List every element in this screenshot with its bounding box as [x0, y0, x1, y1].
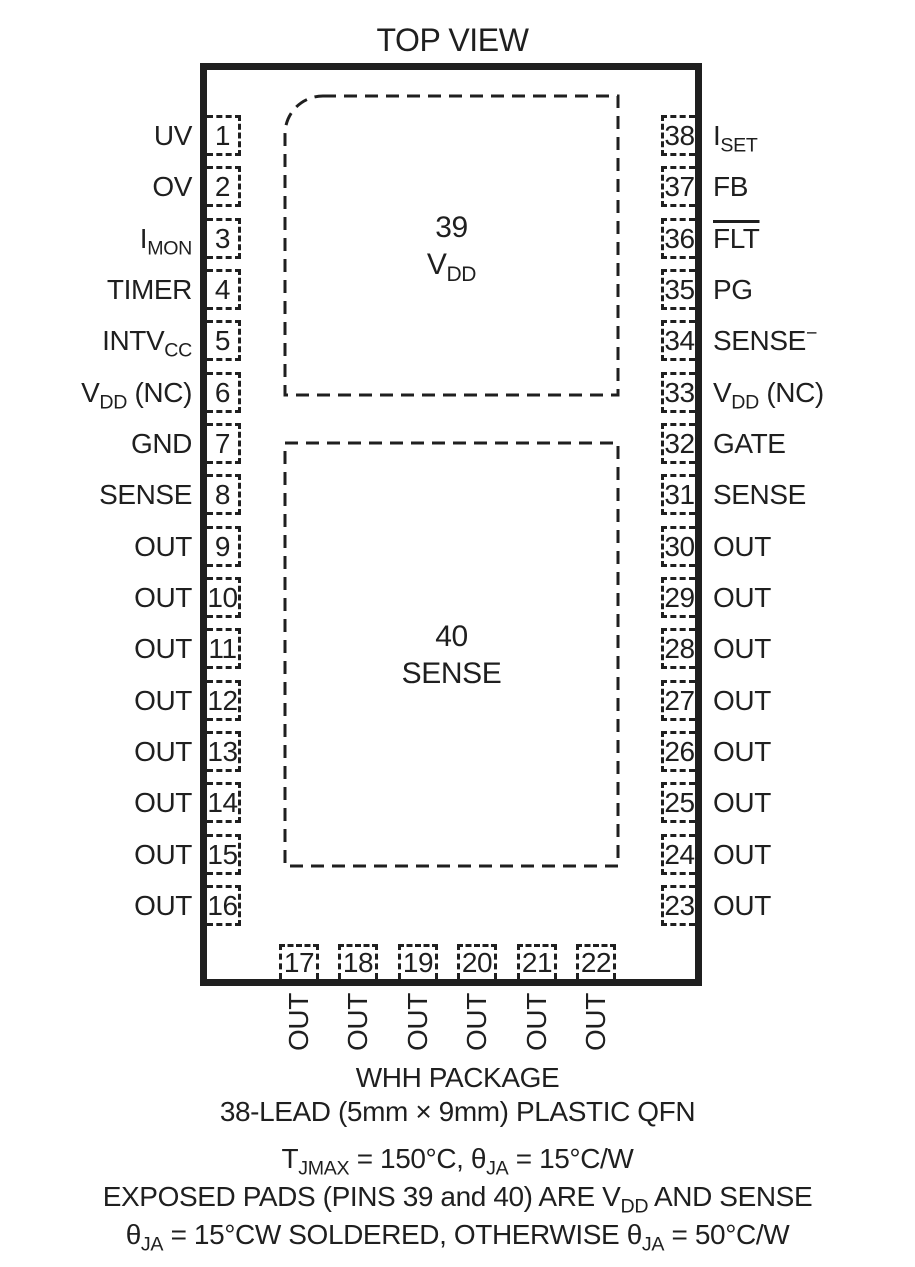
- pin-label: PG: [713, 274, 753, 306]
- pin-number-box: 3: [207, 218, 241, 259]
- pin-row-2: OV 2: [0, 166, 241, 207]
- exposed-pad-40-label: 40 SENSE: [285, 443, 618, 866]
- pin-label: ISET: [713, 120, 758, 152]
- pin-number-box-19: 19: [398, 944, 438, 979]
- pin-number-box: 1: [207, 115, 241, 156]
- pin-label: VDD (NC): [713, 377, 824, 409]
- pin-label: OUT: [134, 633, 192, 665]
- pin-number-box-20: 20: [457, 944, 497, 979]
- pin-label-21: OUT: [505, 990, 569, 1054]
- pin-row-13: OUT 13: [0, 731, 241, 772]
- pin-label-22: OUT: [564, 990, 628, 1054]
- pin-configuration-diagram: TOP VIEW 39 VDD 40 SENSE UV 1 OV 2 IMON …: [0, 0, 915, 1267]
- pin-row-1: UV 1: [0, 115, 241, 156]
- pin-row-28: 28 OUT: [661, 628, 915, 669]
- pin-number-box: 23: [661, 885, 695, 926]
- pin-label: OUT: [713, 890, 771, 922]
- pin-label: GND: [131, 428, 192, 460]
- pin-number-box: 24: [661, 834, 695, 875]
- pin-number-box: 10: [207, 577, 241, 618]
- pin-row-9: OUT 9: [0, 526, 241, 567]
- pin-number-box: 14: [207, 782, 241, 823]
- pin-row-5: INTVCC 5: [0, 320, 241, 361]
- pin-label: OUT: [134, 685, 192, 717]
- pin-label: SENSE: [713, 479, 806, 511]
- pin-number-box-18: 18: [338, 944, 378, 979]
- pin-label: OUT: [134, 787, 192, 819]
- pin-label-17: OUT: [267, 990, 331, 1054]
- thermal-line-1: TJMAX = 150°C, θJA = 15°C/W: [0, 1140, 915, 1178]
- pin-label: OUT: [134, 531, 192, 563]
- pin-row-30: 30 OUT: [661, 526, 915, 567]
- pin-number-box: 29: [661, 577, 695, 618]
- pin-number-box-17: 17: [279, 944, 319, 979]
- pin-number-box: 5: [207, 320, 241, 361]
- pin-row-7: GND 7: [0, 423, 241, 464]
- pin-row-23: 23 OUT: [661, 885, 915, 926]
- pin-number-box: 4: [207, 269, 241, 310]
- pin-number-box: 36: [661, 218, 695, 259]
- pin-row-8: SENSE 8: [0, 474, 241, 515]
- pin-row-14: OUT 14: [0, 782, 241, 823]
- pin-row-11: OUT 11: [0, 628, 241, 669]
- pin-row-12: OUT 12: [0, 680, 241, 721]
- pin-label-18: OUT: [326, 990, 390, 1054]
- package-name: WHH PACKAGE: [0, 1061, 915, 1095]
- pin-row-6: VDD (NC) 6: [0, 372, 241, 413]
- pin-number-box: 32: [661, 423, 695, 464]
- pin-row-37: 37 FB: [661, 166, 915, 207]
- pad-name: VDD: [427, 246, 476, 283]
- pin-label: GATE: [713, 428, 786, 460]
- pin-row-26: 26 OUT: [661, 731, 915, 772]
- pin-row-27: 27 OUT: [661, 680, 915, 721]
- pin-number-box: 27: [661, 680, 695, 721]
- thermal-line-3: θJA = 15°CW SOLDERED, OTHERWISE θJA = 50…: [0, 1216, 915, 1254]
- pin-number-box: 16: [207, 885, 241, 926]
- pin-label: OUT: [713, 582, 771, 614]
- pin-number-box: 12: [207, 680, 241, 721]
- pin-label: VDD (NC): [81, 377, 192, 409]
- pin-label: SENSE: [99, 479, 192, 511]
- pin-row-25: 25 OUT: [661, 782, 915, 823]
- pin-number-box: 38: [661, 115, 695, 156]
- pin-number-box: 35: [661, 269, 695, 310]
- pin-row-38: 38 ISET: [661, 115, 915, 156]
- pin-row-31: 31 SENSE: [661, 474, 915, 515]
- pad-number: 40: [435, 618, 468, 655]
- pin-row-33: 33 VDD (NC): [661, 372, 915, 413]
- pin-number-box-22: 22: [576, 944, 616, 979]
- pin-number-box: 7: [207, 423, 241, 464]
- pin-number-box-21: 21: [517, 944, 557, 979]
- pin-number-box: 8: [207, 474, 241, 515]
- pad-name: SENSE: [402, 655, 502, 692]
- pin-number-box: 15: [207, 834, 241, 875]
- pin-label: UV: [154, 120, 192, 152]
- pin-row-29: 29 OUT: [661, 577, 915, 618]
- pin-number-box: 33: [661, 372, 695, 413]
- pin-number-box: 13: [207, 731, 241, 772]
- pin-row-4: TIMER 4: [0, 269, 241, 310]
- pin-number-box: 37: [661, 166, 695, 207]
- pin-label: FLT: [713, 223, 760, 255]
- pad-number: 39: [435, 209, 468, 246]
- pin-label: OUT: [713, 736, 771, 768]
- pin-number-box: 9: [207, 526, 241, 567]
- pin-label: OUT: [713, 633, 771, 665]
- pin-label-19: OUT: [386, 990, 450, 1054]
- pin-label: OUT: [134, 582, 192, 614]
- pin-label: OUT: [713, 787, 771, 819]
- pin-number-box: 25: [661, 782, 695, 823]
- pin-row-16: OUT 16: [0, 885, 241, 926]
- pin-label: FB: [713, 171, 748, 203]
- pin-label: OUT: [713, 685, 771, 717]
- pin-row-3: IMON 3: [0, 218, 241, 259]
- pin-row-24: 24 OUT: [661, 834, 915, 875]
- pin-label-20: OUT: [445, 990, 509, 1054]
- pin-label: TIMER: [107, 274, 192, 306]
- pin-label: OUT: [134, 736, 192, 768]
- pin-row-34: 34 SENSE−: [661, 320, 915, 361]
- thermal-line-2: EXPOSED PADS (PINS 39 and 40) ARE VDD AN…: [0, 1178, 915, 1216]
- pin-row-36: 36 FLT: [661, 218, 915, 259]
- pin-label: SENSE−: [713, 325, 817, 357]
- pin-row-15: OUT 15: [0, 834, 241, 875]
- package-description: 38-LEAD (5mm × 9mm) PLASTIC QFN: [0, 1095, 915, 1129]
- pin-number-box: 6: [207, 372, 241, 413]
- diagram-title: TOP VIEW: [200, 22, 705, 59]
- pin-number-box: 34: [661, 320, 695, 361]
- exposed-pad-39-label: 39 VDD: [285, 96, 618, 395]
- pin-label: OV: [152, 171, 192, 203]
- pin-label: INTVCC: [102, 325, 192, 357]
- pin-number-box: 26: [661, 731, 695, 772]
- pin-row-10: OUT 10: [0, 577, 241, 618]
- pin-number-box: 31: [661, 474, 695, 515]
- thermal-caption: TJMAX = 150°C, θJA = 15°C/W EXPOSED PADS…: [0, 1140, 915, 1254]
- pin-number-box: 11: [207, 628, 241, 669]
- package-caption: WHH PACKAGE 38-LEAD (5mm × 9mm) PLASTIC …: [0, 1061, 915, 1129]
- pin-label: OUT: [134, 890, 192, 922]
- pin-label: OUT: [713, 839, 771, 871]
- pin-label: OUT: [713, 531, 771, 563]
- pin-row-35: 35 PG: [661, 269, 915, 310]
- pin-number-box: 28: [661, 628, 695, 669]
- pin-number-box: 2: [207, 166, 241, 207]
- pin-row-32: 32 GATE: [661, 423, 915, 464]
- pin-label: IMON: [140, 223, 192, 255]
- pin-label: OUT: [134, 839, 192, 871]
- pin-number-box: 30: [661, 526, 695, 567]
